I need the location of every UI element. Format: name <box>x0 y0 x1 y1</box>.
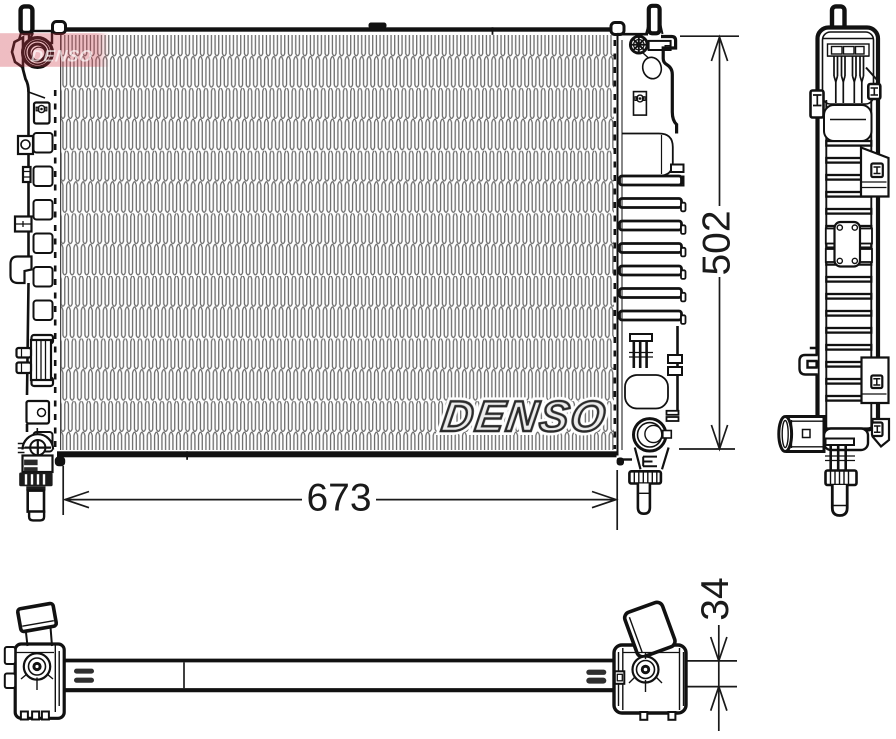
svg-text:673: 673 <box>306 477 371 520</box>
svg-text:DENSO: DENSO <box>30 47 94 66</box>
svg-text:DENSO: DENSO <box>439 392 611 441</box>
svg-text:502: 502 <box>696 210 739 275</box>
svg-text:34: 34 <box>694 577 737 620</box>
